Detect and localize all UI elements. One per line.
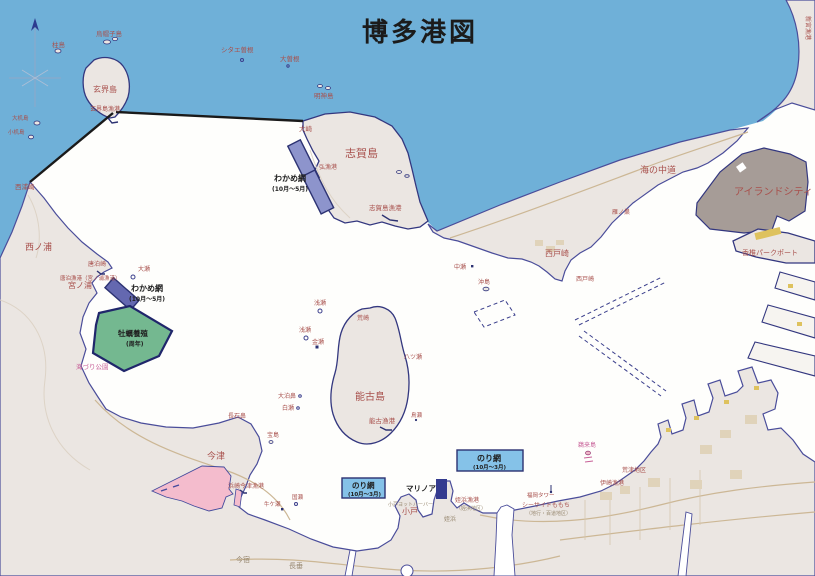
torise-label: 鳥瀬 <box>411 411 423 419</box>
shirase-label: 白瀬 <box>282 404 294 412</box>
oyster-label: 牡蠣養殖 <box>118 328 148 338</box>
map-canvas: 柱島烏帽子島シタエ曽根大曽根明神島玄界島玄界島漁港大崎志賀島弘漁港志賀島漁港わか… <box>0 0 815 576</box>
marinoa-label: マリノア <box>406 484 436 493</box>
arasaki-label: 荒崎 <box>357 314 369 322</box>
hiro-port-label: 弘漁港 <box>319 163 337 171</box>
nori-center-label: のり網 <box>477 453 501 463</box>
wakame-shika-label: わかめ網 <box>274 173 306 183</box>
nagatare-label: 長垂 <box>289 561 303 570</box>
osone-label: 大曽根 <box>280 54 300 63</box>
kotsukuejima-label: 小机島 <box>8 128 25 136</box>
wakame-miya-period: (10月〜5月) <box>129 295 165 303</box>
meinohama-district-label: （姪浜地区） <box>456 505 486 512</box>
odo-yacht-harbor-label: 小戸ヨットハーバー <box>388 501 433 508</box>
nakase-label: 中瀬 <box>454 263 466 271</box>
umizuri-park-label: 海づり公園 <box>76 362 109 371</box>
karadomarizaki-label: 唐泊崎 <box>88 260 106 268</box>
shingu-port-label: 新宮漁港 <box>804 16 812 40</box>
imajuku-label: 今宿 <box>236 555 250 564</box>
meinohama-label: 姪浜 <box>444 515 456 523</box>
jigyo-momochi-district-label: （地行・百道地区） <box>526 510 571 517</box>
island-city-label: アイランドシティ <box>734 186 813 198</box>
nishinoura-label: 西ノ浦 <box>25 241 52 253</box>
hakata-port-map: 柱島烏帽子島シタエ曽根大曽根明神島玄界島玄界島漁港大崎志賀島弘漁港志賀島漁港わか… <box>0 0 815 576</box>
okishima-label: 沖島 <box>478 278 490 286</box>
miyanoura-label: 宮ノ浦 <box>68 280 92 290</box>
hatsuse-label: 八ツ瀬 <box>404 353 422 361</box>
fukuoka-tower-label: 福岡タワー <box>527 491 555 499</box>
map-title: 博多港図 <box>290 12 550 49</box>
nori-center-period: (10月〜3月) <box>473 463 506 471</box>
myojinjima-label: 明神島 <box>314 91 334 100</box>
isaki-port-label: 伊崎漁港 <box>600 479 624 487</box>
kunise-label: 国瀬 <box>292 493 304 501</box>
kashii-parkport-label: 香椎パークポート <box>742 248 798 257</box>
asase1-label: 浅瀬 <box>314 299 326 307</box>
nokonoshima-label: 能古島 <box>355 390 385 403</box>
oyster-period: (周年) <box>126 340 144 348</box>
shikanoshima-label: 志賀島 <box>345 146 378 160</box>
uminonakamichi-label: 海の中道 <box>640 164 676 176</box>
aratsu-district-label: 荒津地区 <box>622 466 646 474</box>
hamasaki-imazu-port-label: 浜崎今津漁港 <box>228 482 264 490</box>
noko-port-label: 能古漁港 <box>369 416 396 425</box>
genkaijima-label: 玄界島 <box>93 84 117 94</box>
ushigase-label: 牛ケ瀬 <box>264 500 281 508</box>
otsukuejima-label: 大机島 <box>12 114 29 122</box>
shikanoshima-port-label: 志賀島漁港 <box>369 203 402 212</box>
wakame-shika-period: (10月〜5月) <box>272 185 308 193</box>
landmark-circle <box>401 565 413 576</box>
takarajima-label: 宝島 <box>267 431 279 439</box>
ukishima-label: 鵜来島 <box>578 441 596 449</box>
seaside-momochi-label: シーサイドももち <box>522 502 570 509</box>
odo-label: 小戸 <box>402 507 418 516</box>
nagaishibana-label: 長石鼻 <box>228 412 246 420</box>
nori-odo-period: (10月〜3月) <box>348 490 381 498</box>
osaki-label: 大崎 <box>299 124 313 133</box>
imazu-label: 今津 <box>207 450 225 462</box>
genkaijima-port-label: 玄界島漁港 <box>90 105 120 113</box>
nori-odo-label: のり網 <box>352 480 375 490</box>
nishiurazaki-label: 西浦崎 <box>15 182 35 191</box>
wakame-miya-label: わかめ網 <box>131 283 163 293</box>
shitaesone-label: シタエ曽根 <box>221 45 254 54</box>
meinohama-port-label: 姪浜漁港 <box>455 496 479 504</box>
eboshijima-label: 烏帽子島 <box>96 29 123 38</box>
odomaribana-label: 大泊鼻 <box>278 392 296 400</box>
gannosu-label: 雁ノ巣 <box>612 208 630 216</box>
marinoa-block <box>436 479 447 499</box>
asase2-label: 浅瀬 <box>299 326 311 334</box>
kanase-label: 金瀬 <box>312 338 324 346</box>
saitozaki-cape-label: 西戸崎 <box>576 275 594 283</box>
hashirajima-label: 柱島 <box>52 40 66 49</box>
saitozaki-label: 西戸崎 <box>545 248 569 258</box>
ose-label: 大瀬 <box>138 265 150 273</box>
